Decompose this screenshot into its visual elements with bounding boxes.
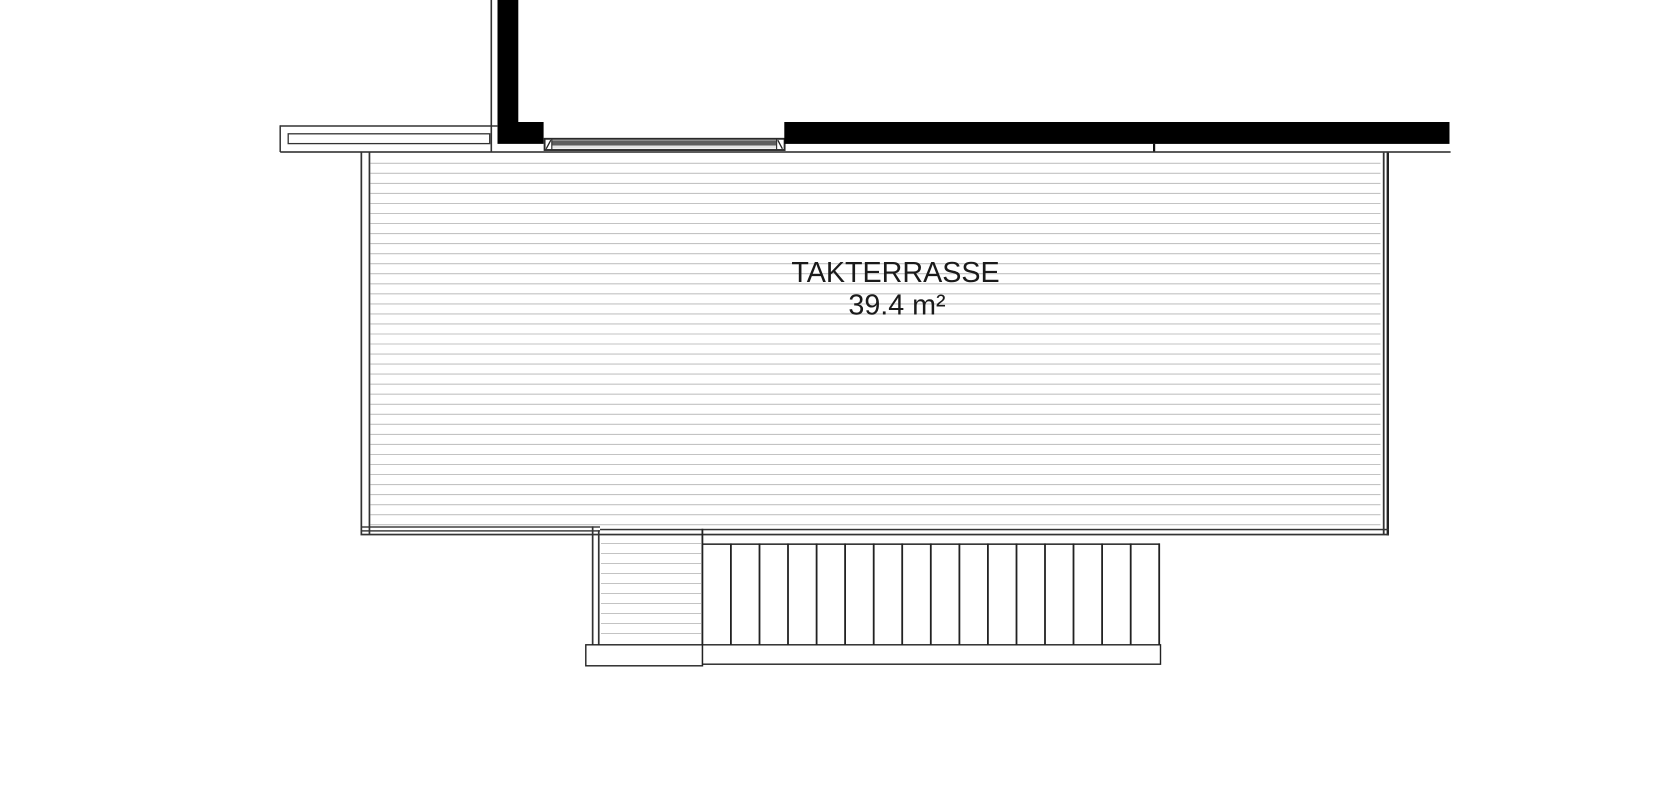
svg-text:39.4 m²: 39.4 m² (848, 289, 945, 321)
svg-text:TAKTERRASSE: TAKTERRASSE (791, 257, 999, 289)
